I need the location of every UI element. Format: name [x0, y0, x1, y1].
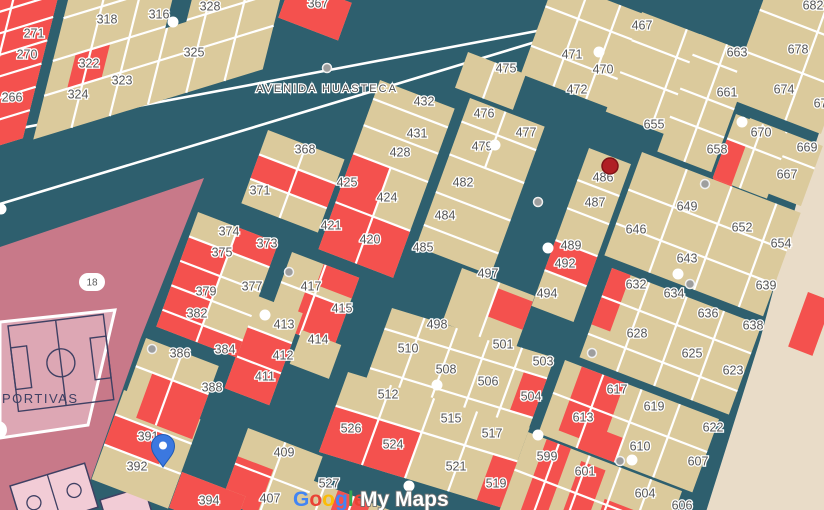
parcel-label: 623: [723, 364, 744, 378]
parcel-label: 658: [707, 143, 728, 157]
badge-label: 18: [86, 278, 98, 289]
parcel-label: 599: [537, 450, 558, 464]
parcel-label: 673: [814, 97, 824, 111]
parcel-label: 606: [672, 499, 693, 510]
junction-dot-gray: [588, 349, 597, 358]
parcel-label: 661: [717, 86, 738, 100]
parcel-label: 634: [664, 287, 685, 301]
parcel-label: 316: [149, 8, 170, 22]
parcel-label: 497: [478, 267, 499, 281]
parcel-label: 388: [202, 381, 223, 395]
parcel-label: 409: [274, 446, 295, 460]
parcel-label: 374: [219, 225, 240, 239]
parcel-label: 667: [777, 168, 798, 182]
parcel-label: 607: [688, 455, 709, 469]
parcel-label: 270: [17, 48, 38, 62]
parcel-label: 504: [521, 390, 542, 404]
parcel-label: 515: [441, 412, 462, 426]
parcel-label: 484: [435, 209, 456, 223]
parcel-label: 487: [585, 196, 606, 210]
parcel-label: 413: [274, 318, 295, 332]
parcel-label: 678: [788, 43, 809, 57]
parcel-label: 643: [677, 252, 698, 266]
parcel-label: 628: [627, 327, 648, 341]
parcel-label: 482: [453, 176, 474, 190]
map-canvas[interactable]: 3183163283253233242712703222663674324314…: [0, 0, 824, 510]
parcel-label: 489: [561, 239, 582, 253]
parcel-label: 375: [212, 246, 233, 260]
parcel-label: 669: [797, 141, 818, 155]
parcel-label: 425: [337, 176, 358, 190]
parcel-label: 431: [407, 127, 428, 141]
parcel-label: 622: [703, 421, 724, 435]
parcel-label: 632: [626, 278, 647, 292]
parcel-label: 386: [170, 347, 191, 361]
junction-dot-white: [490, 140, 501, 151]
junction-dot-white: [594, 47, 605, 58]
parcel-label: 325: [184, 46, 205, 60]
watermark: Google My Maps: [293, 488, 449, 510]
parcel-label: 510: [398, 342, 419, 356]
junction-dot-white: [260, 310, 271, 321]
junction-dot-white: [168, 17, 179, 28]
parcel-label: 638: [743, 319, 764, 333]
parcel-label: 654: [771, 237, 792, 251]
parcel-label: 324: [68, 88, 89, 102]
parcel-label: 670: [751, 126, 772, 140]
sports-area-label: PORTIVAS: [2, 391, 79, 406]
junction-dot-white: [627, 455, 638, 466]
junction-dot-white: [737, 117, 748, 128]
parcel-label: 414: [308, 333, 329, 347]
parcel-label: 652: [732, 221, 753, 235]
parcel-label: 625: [682, 347, 703, 361]
parcel-label: 619: [644, 400, 665, 414]
parcel-label: 512: [378, 388, 399, 402]
parcel-label: 373: [257, 237, 278, 251]
parcel-label: 371: [250, 184, 271, 198]
parcel-label: 476: [474, 107, 495, 121]
parcel-label: 379: [196, 285, 217, 299]
parcel-label: 524: [383, 438, 404, 452]
parcel-label: 492: [555, 257, 576, 271]
parcel-label: 655: [644, 118, 665, 132]
parcel-label: 519: [486, 477, 507, 491]
parcel-label: 517: [482, 427, 503, 441]
junction-dot-gray: [534, 198, 543, 207]
parcel-label: 498: [427, 318, 448, 332]
parcel-label: 367: [308, 0, 329, 11]
parcel-label: 415: [332, 302, 353, 316]
parcel-label: 323: [112, 74, 133, 88]
parcel-label: 384: [215, 343, 236, 357]
watermark-text: My Maps: [360, 488, 449, 510]
parcel-label: 477: [516, 126, 537, 140]
parcel-label: 494: [537, 287, 558, 301]
parcel-label: 377: [242, 280, 263, 294]
parcel-label: 521: [446, 460, 467, 474]
junction-dot-white: [673, 269, 684, 280]
parcel-label: 526: [341, 422, 362, 436]
parcel-label: 417: [301, 280, 322, 294]
red-circle-marker[interactable]: [602, 158, 618, 174]
parcel-label: 420: [360, 233, 381, 247]
parcel-label: 475: [496, 62, 517, 76]
parcel-label: 368: [295, 143, 316, 157]
parcel-label: 266: [2, 91, 23, 105]
parcel-label: 428: [390, 146, 411, 160]
google-logo: Google: [293, 488, 365, 510]
junction-dot-gray: [701, 180, 710, 189]
parcel-label: 472: [567, 83, 588, 97]
parcel-label: 601: [575, 465, 596, 479]
parcel-label: 501: [493, 338, 514, 352]
parcel-label: 617: [607, 383, 628, 397]
parcel-label: 613: [573, 411, 594, 425]
parcel-label: 382: [187, 307, 208, 321]
parcel-label: 470: [593, 63, 614, 77]
parcel-label: 663: [727, 46, 748, 60]
parcel-label: 421: [321, 219, 342, 233]
parcel-label: 467: [632, 19, 653, 33]
parcel-label: 639: [756, 279, 777, 293]
map-viewport: 3183163283253233242712703222663674324314…: [0, 0, 824, 510]
parcel-label: 471: [562, 48, 583, 62]
parcel-label: 646: [626, 223, 647, 237]
parcel-label: 271: [24, 27, 45, 41]
parcel-label: 506: [478, 375, 499, 389]
parcel-label: 503: [533, 355, 554, 369]
parcel-label: 649: [677, 200, 698, 214]
parcel-label: 412: [273, 349, 294, 363]
junction-dot-gray: [148, 345, 157, 354]
parcel-label: 674: [774, 83, 795, 97]
parcel-label: 508: [436, 363, 457, 377]
parcel-label: 424: [377, 191, 398, 205]
parcel-label: 322: [79, 57, 100, 71]
parcel-label: 318: [97, 13, 118, 27]
parcel-label: 394: [199, 494, 220, 508]
junction-dot-gray: [285, 268, 294, 277]
junction-dot-gray: [323, 64, 332, 73]
junction-dot-gray: [616, 457, 625, 466]
parcel-label: 682: [803, 0, 824, 13]
street-name-label: AVENIDA HUASTECA: [256, 83, 398, 95]
parcel-label: 636: [698, 307, 719, 321]
parcel-label: 604: [635, 487, 656, 501]
parcel-label: 485: [413, 241, 434, 255]
parcel-label: 432: [414, 95, 435, 109]
parcel-label: 407: [260, 492, 281, 506]
junction-dot-white: [432, 380, 443, 391]
parcel-label: 328: [200, 0, 221, 14]
junction-dot-white: [533, 430, 544, 441]
parcel-label: 392: [127, 460, 148, 474]
area-badge: 18: [79, 273, 105, 291]
parcel-label: 411: [255, 370, 275, 384]
junction-dot-white: [543, 243, 554, 254]
junction-dot-gray: [686, 280, 695, 289]
parcel-label: 610: [630, 440, 651, 454]
parcel-label: 479: [472, 140, 493, 154]
